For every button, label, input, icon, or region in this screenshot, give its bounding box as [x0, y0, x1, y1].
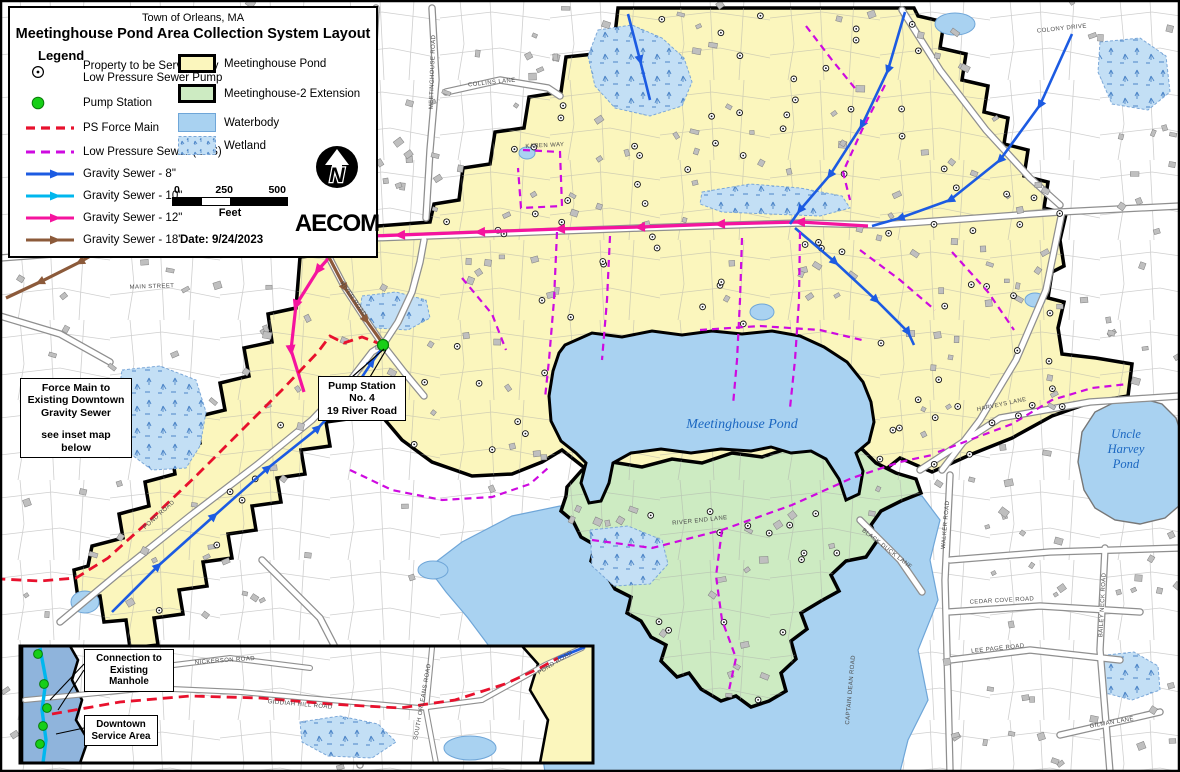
legend-area-wetland: Wetland	[178, 136, 266, 155]
legend-item-label: Pump Station	[83, 97, 152, 109]
extension-area-swatch	[178, 84, 216, 103]
wetland-swatch	[178, 136, 216, 155]
serviced-property-icon	[24, 63, 76, 81]
legend-item-label: PS Force Main	[83, 122, 159, 134]
scale-tick: 250	[215, 184, 233, 196]
scale-tick: 500	[268, 184, 286, 196]
gravity-10-line-icon	[24, 190, 76, 202]
pump-station-4-dot	[378, 340, 389, 351]
svg-text:Uncle: Uncle	[1111, 427, 1141, 441]
meetinghouse-pond-label: Meetinghouse Pond	[685, 417, 799, 432]
legend-item-label: Gravity Sewer - 8"	[83, 168, 176, 180]
legend-item-gravity-8: Gravity Sewer - 8"	[24, 168, 176, 180]
gravity-12-line-icon	[24, 212, 76, 224]
lps-line-icon	[24, 148, 76, 156]
pump-station-callout: Pump Station No. 4 19 River Road	[318, 376, 406, 421]
map-canvas: MAIN STREET MEETINGHOUSE ROAD COLLINS LA…	[0, 0, 1180, 772]
legend-item-label: Meetinghouse Pond	[224, 58, 326, 70]
downtown-callout: Downtown Service Area	[84, 715, 158, 746]
town-title: Town of Orleans, MA	[10, 12, 376, 24]
svg-text:Harvey: Harvey	[1107, 442, 1145, 456]
legend-item-gravity-12: Gravity Sewer - 12"	[24, 212, 182, 224]
scale-tick: 0	[174, 184, 180, 196]
legend-item-pump-station: Pump Station	[24, 96, 152, 110]
inset-downtown-service-area	[22, 646, 88, 763]
legend-item-force-main: PS Force Main	[24, 122, 159, 134]
force-main-line-icon	[24, 124, 76, 132]
gravity-18-line-icon	[24, 234, 76, 246]
legend-item-label: Gravity Sewer - 12"	[83, 212, 182, 224]
scale-bar-graphic	[172, 197, 288, 206]
legend-panel: Town of Orleans, MA Meetinghouse Pond Ar…	[8, 6, 378, 258]
waterbody-swatch	[178, 113, 216, 132]
svg-text:Pond: Pond	[1112, 457, 1140, 471]
gravity-8-line-icon	[24, 168, 76, 180]
scale-bar: 0 250 500 Feet	[172, 184, 288, 219]
pump-station-icon	[24, 96, 76, 110]
legend-area-service: Meetinghouse Pond	[178, 54, 326, 73]
legend-item-label: Wetland	[224, 140, 266, 152]
svg-text:N: N	[329, 164, 345, 187]
legend-item-label: Waterbody	[224, 117, 279, 129]
legend-item-label: Gravity Sewer - 18"	[83, 234, 182, 246]
north-arrow-icon: N	[313, 143, 361, 196]
legend-item-gravity-10: Gravity Sewer - 10"	[24, 190, 182, 202]
uncle-harvey-pond-label: Uncle Harvey Pond	[1107, 427, 1145, 471]
legend-item-label: Gravity Sewer - 10"	[83, 190, 182, 202]
legend-area-extension: Meetinghouse-2 Extension	[178, 84, 360, 103]
legend-item-label: Meetinghouse-2 Extension	[224, 88, 360, 100]
legend-area-waterbody: Waterbody	[178, 113, 279, 132]
scale-unit: Feet	[172, 207, 288, 219]
force-main-callout: Force Main to Existing Downtown Gravity …	[20, 378, 132, 458]
aecom-logo: AECOM	[294, 210, 380, 238]
connection-callout: Connection to Existing Manhole	[84, 649, 174, 692]
legend-item-gravity-18: Gravity Sewer - 18"	[24, 234, 182, 246]
page-title: Meetinghouse Pond Area Collection System…	[10, 26, 376, 42]
map-date: Date: 9/24/2023	[180, 234, 263, 246]
service-area-swatch	[178, 54, 216, 73]
